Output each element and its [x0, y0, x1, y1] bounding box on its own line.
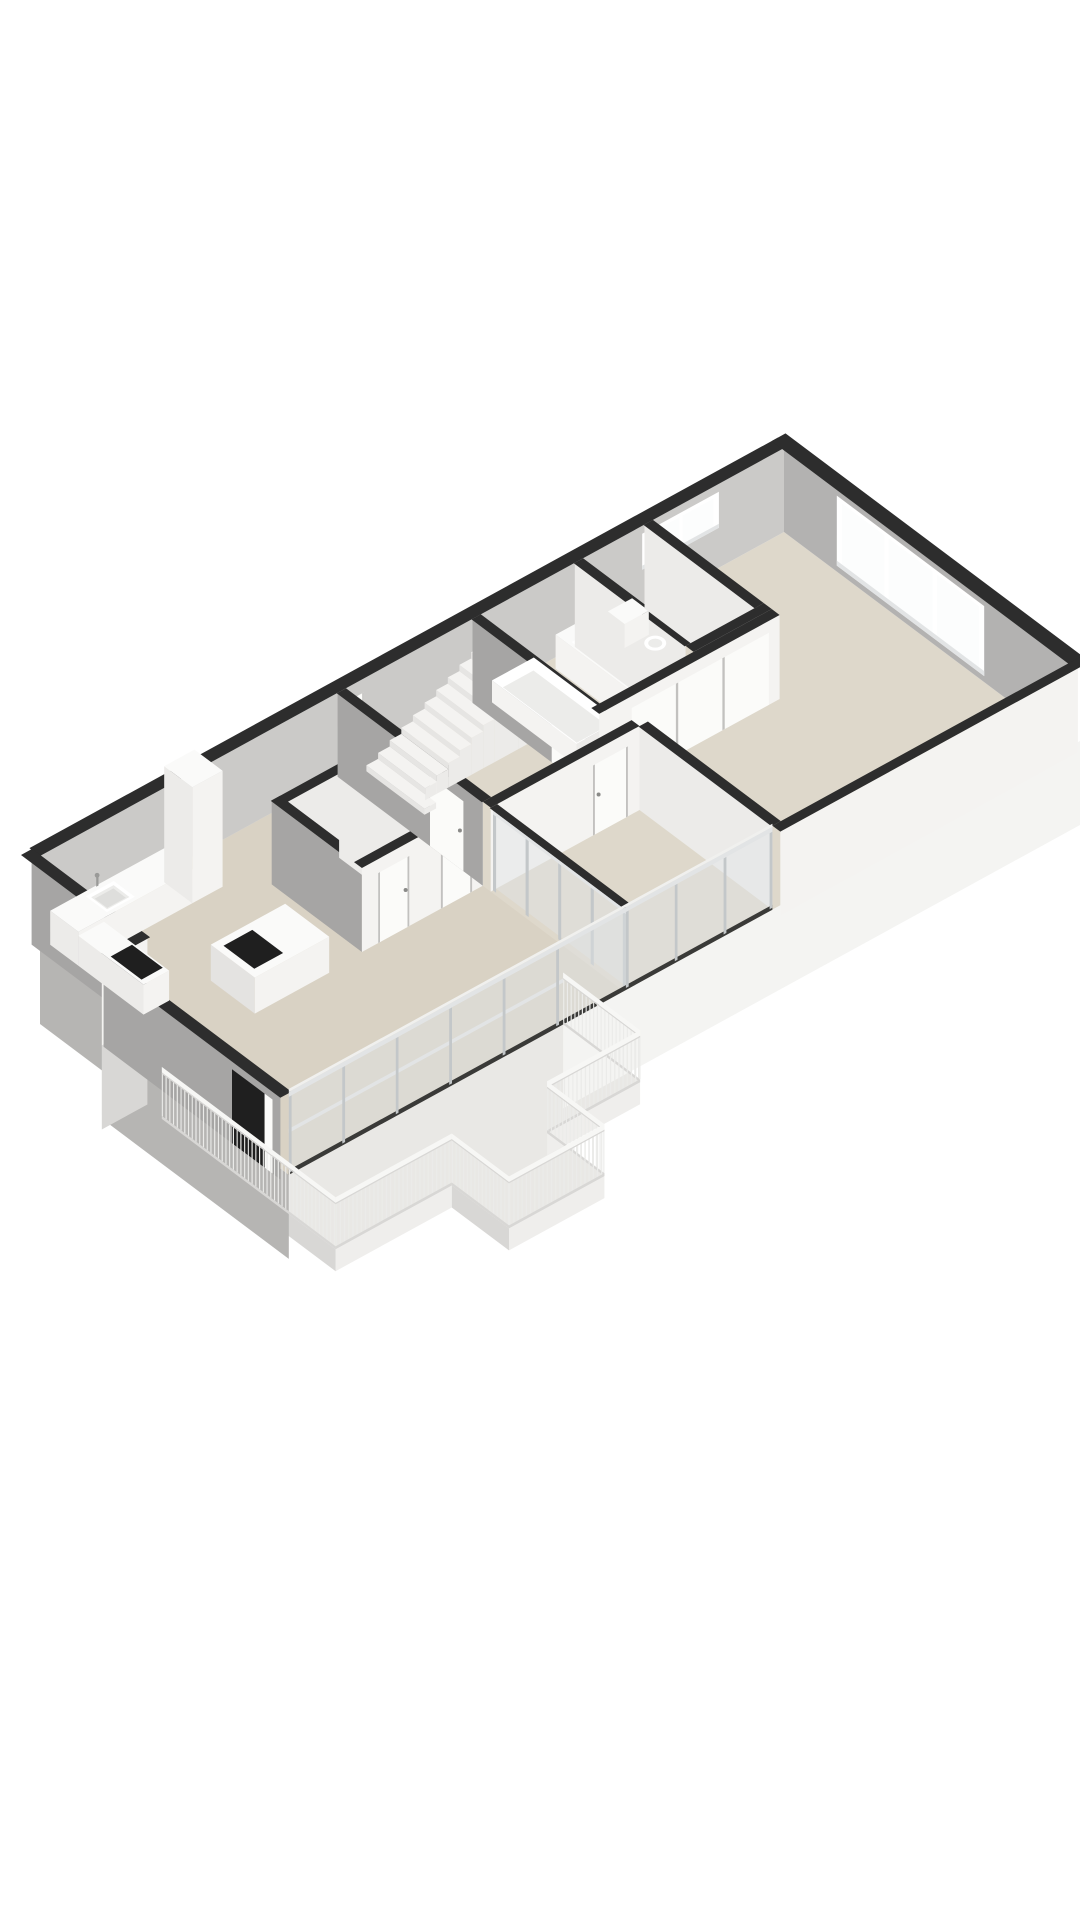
floorplan-image — [0, 0, 1080, 1920]
floorplan-3d-render — [0, 0, 1080, 1920]
tall-cabinet — [164, 750, 222, 904]
